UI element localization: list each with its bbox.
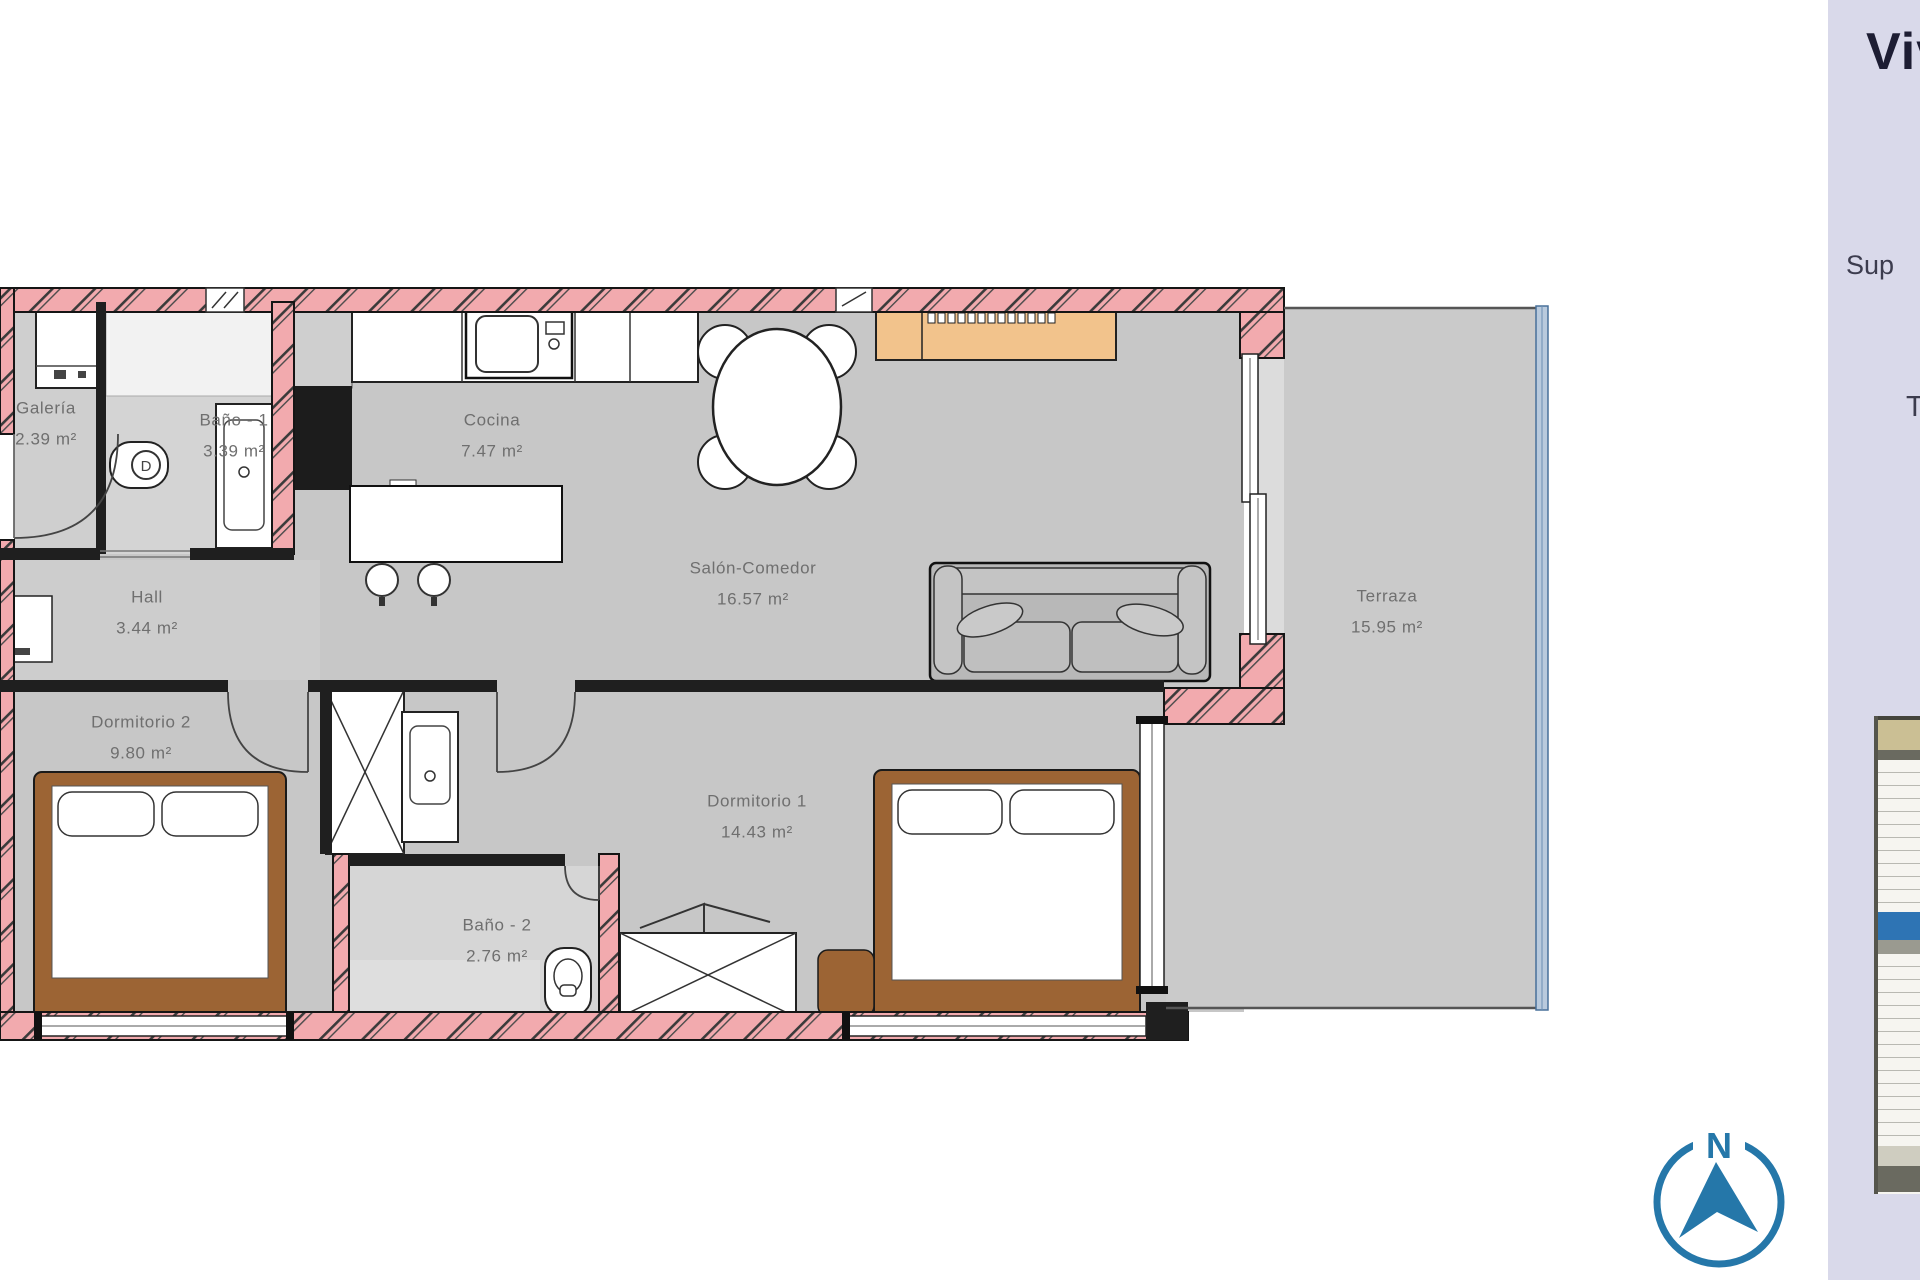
compass-north-label: N	[1706, 1125, 1732, 1166]
key-plan-band	[1878, 720, 1920, 750]
vent-top-wall	[206, 288, 244, 312]
north-arrow-icon	[1679, 1162, 1758, 1238]
key-plan-units	[1878, 954, 1920, 1146]
sideboard	[876, 310, 1116, 360]
panel-superficie-label: Sup	[1846, 250, 1894, 281]
svg-text:D: D	[141, 458, 152, 475]
key-plan-divider	[1878, 750, 1920, 760]
bed-dormitorio-2	[34, 772, 286, 1020]
floor-plan-drawing: D	[0, 0, 1920, 1280]
key-plan-highlighted-unit	[1878, 912, 1920, 940]
page: D	[0, 0, 1920, 1280]
dining-table	[713, 329, 841, 485]
toilet-bano-1: D	[110, 442, 168, 488]
dining-set	[698, 325, 856, 489]
sofa	[930, 563, 1210, 681]
kitchen-tall-unit	[290, 386, 352, 490]
key-plan-thumbnail	[1874, 716, 1920, 1194]
key-plan-edge	[1878, 1166, 1920, 1192]
bed-bench	[818, 950, 874, 1016]
vanity-bano-2	[402, 712, 458, 842]
panel-terraza-label: T	[1906, 391, 1920, 424]
kitchen-counter	[294, 306, 698, 388]
window-top-wall	[836, 288, 872, 312]
toilet-bano-2	[545, 948, 591, 1016]
washing-machine	[36, 304, 98, 388]
key-plan-units	[1878, 760, 1920, 912]
wardrobe-dormitorio-2	[326, 690, 404, 854]
panel-title: Viv	[1866, 22, 1920, 82]
key-plan-divider	[1878, 940, 1920, 954]
vanity-bano-1	[216, 404, 272, 548]
key-plan-band	[1878, 1146, 1920, 1166]
north-compass: N	[1657, 1125, 1781, 1264]
